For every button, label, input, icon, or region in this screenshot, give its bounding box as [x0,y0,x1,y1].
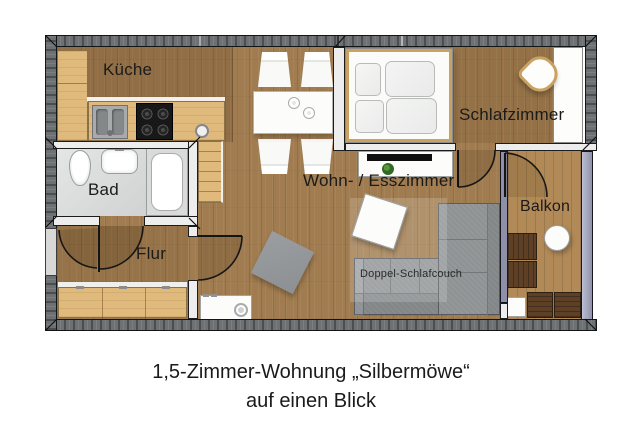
bedroom-wall-bottom-right [495,143,597,151]
duvet-2 [386,98,437,134]
bathroom-wall-right [188,141,198,226]
wardrobe-handle-3 [162,286,170,289]
sleeper-couch-right [438,203,500,315]
bathroom-sink [101,149,138,174]
tv [367,154,432,161]
couch-backrest-right [487,204,501,316]
room-label-bedroom: Schlafzimmer [459,106,564,124]
wardrobe-seam-2 [145,288,146,319]
bathroom-wall-top [53,141,198,149]
dining-table [253,91,333,134]
hallway-wardrobe [58,287,187,318]
outer-wall-top [45,35,597,47]
duvet-1 [385,61,435,97]
dining-chair-top-right [301,52,333,87]
room-label-kitchen: Küche [103,61,152,79]
balcony-chair-bottom-2 [554,292,581,318]
balcony-table [544,225,570,251]
furniture-label-sleeper-couch: Doppel-Schlafcouch [360,269,462,281]
cabinet-handle-2 [211,294,217,297]
wardrobe-handle-1 [76,286,84,289]
room-label-living-dining: Wohn- / Esszimmer [303,172,454,190]
bedroom-wall-left [333,47,345,151]
counter-knob [195,124,209,138]
bathroom-wall-bottom-right [144,216,198,226]
kitchen-counter-left [57,50,88,141]
hallway-wall-right-upper [188,226,198,237]
bathroom-wall-bottom-left [53,216,100,226]
caption: 1,5-Zimmer-Wohnung „Silbermöwe“ auf eine… [0,358,622,416]
balcony-railing [581,151,593,320]
kitchen-shelf [198,141,223,203]
small-cabinet [200,295,252,322]
room-label-hallway: Flur [136,245,166,263]
pillow-1 [355,63,381,96]
stove [136,103,173,140]
cabinet-handle-1 [203,294,209,297]
outer-wall-right [585,35,597,151]
balcony-chair-left-2 [507,261,537,288]
bedroom-wall-bottom-left [345,143,456,151]
hallway-wall-right-lower [188,280,198,319]
dining-chair-top-left [258,52,291,87]
caption-subtitle: auf einen Blick [0,387,622,416]
kitchen-sink [92,105,128,139]
bathtub [146,148,188,216]
bedroom-wardrobe [553,47,583,143]
double-bed [345,48,453,143]
plate-2 [303,107,315,119]
room-label-balcony: Balkon [520,199,570,216]
dining-chair-bottom-right [301,139,333,174]
entry-door-opening [45,228,57,276]
balcony-divider-end [500,303,508,319]
cabinet-ring [234,303,248,317]
caption-title: 1,5-Zimmer-Wohnung „Silbermöwe“ [0,358,622,387]
balcony-chair-left-1 [507,233,537,260]
pillow-2 [355,100,384,133]
room-label-bathroom: Bad [88,181,119,199]
balcony-divider [500,151,508,303]
outer-wall-left [45,35,57,331]
balcony-chair-bottom-1 [527,292,553,318]
balcony-box [507,297,526,317]
dining-chair-bottom-left [258,139,291,174]
sink-faucet [107,130,113,136]
sink-basin-right [112,109,124,135]
hallway-floor-shade [57,226,188,283]
bathtub-inner [151,153,183,211]
kitchen-counter-divider [58,83,87,84]
plate-1 [288,97,300,109]
outer-wall-bottom [45,319,597,331]
wardrobe-handle-2 [119,286,127,289]
wardrobe-seam-1 [102,288,103,319]
